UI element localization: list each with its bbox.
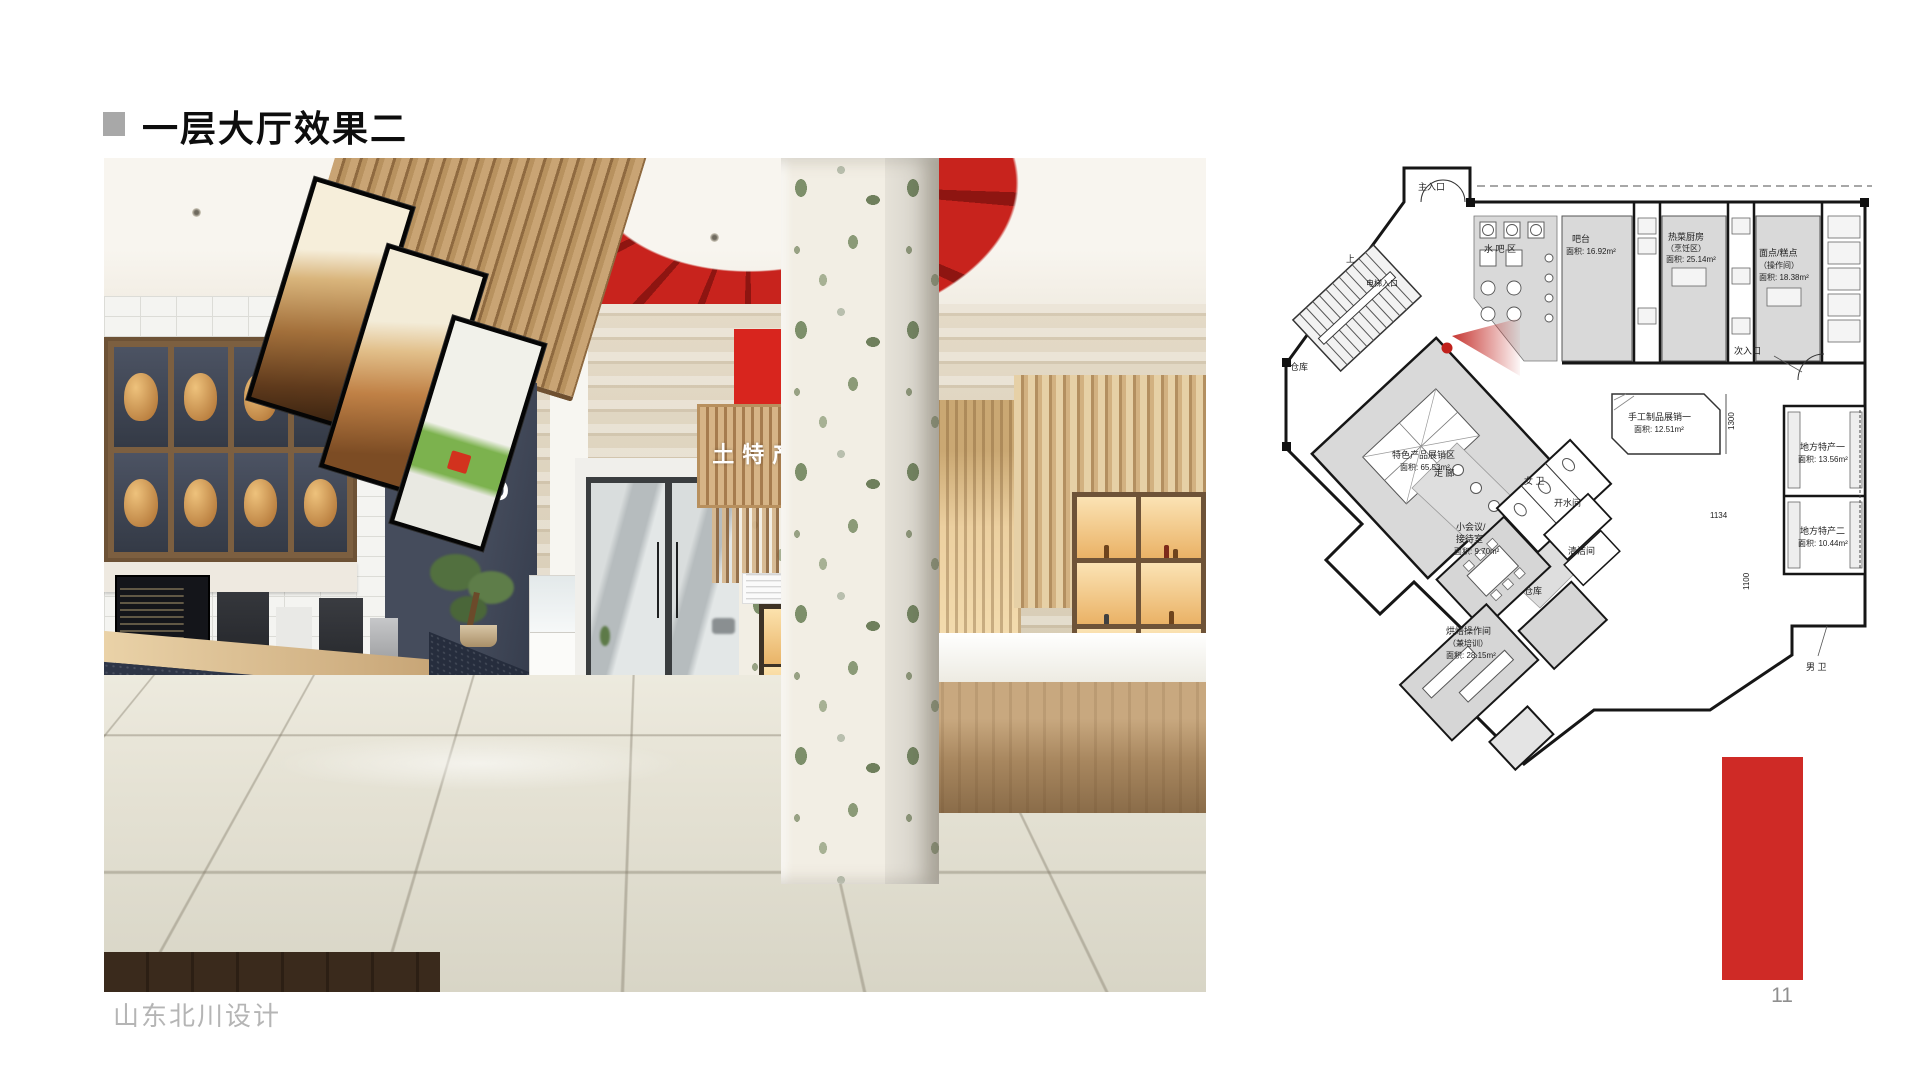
title-bullet <box>103 112 125 136</box>
plan-label: 开水间 <box>1554 497 1581 508</box>
plan-label: 次入口 <box>1734 345 1761 356</box>
plan-label: 特色产品展销区 <box>1392 449 1455 460</box>
plan-label: 面点/糕点 <box>1759 247 1798 258</box>
plan-label: 面积: 16.92m² <box>1566 246 1616 256</box>
plan-label: 仓库 <box>1290 361 1308 372</box>
plan-label: 面积: 25.14m² <box>1666 254 1716 264</box>
plan-label: 仓库 <box>1524 585 1542 596</box>
bread <box>184 373 217 421</box>
bread <box>124 479 157 527</box>
shelf-cubby <box>174 453 228 553</box>
leader-line <box>1818 626 1827 656</box>
door-leaf <box>591 483 665 681</box>
shelf-cubby <box>234 453 288 553</box>
shelf-cell <box>1077 563 1137 624</box>
plan-label: 男 卫 <box>1806 662 1827 672</box>
plan-label: 面积: 9.70m² <box>1454 546 1500 556</box>
page-title: 一层大厅效果二 <box>142 100 408 152</box>
plan-label: 电梯入口 <box>1366 278 1398 288</box>
door-handle <box>657 542 659 617</box>
plan-label: 接待室 <box>1456 533 1483 544</box>
bonsai-pot <box>460 625 497 647</box>
plan-label: 女 卫 <box>1524 475 1545 486</box>
plan-label: 面积: 13.56m² <box>1798 454 1848 464</box>
page-number: 11 <box>1752 984 1812 1008</box>
shelf-cubby <box>114 347 168 447</box>
plan-label: 地方特产二 <box>1800 525 1845 536</box>
red-accent-block <box>1722 757 1803 980</box>
plan-label: 清洁间 <box>1568 545 1595 556</box>
plan-label: 面积: 12.51m² <box>1634 424 1684 434</box>
plan-label: 吧台 <box>1572 233 1590 244</box>
bread <box>304 479 337 527</box>
handcraft-island <box>1612 394 1720 454</box>
shelf-cell <box>1077 497 1137 558</box>
bread <box>184 479 217 527</box>
plan-dimension: 1134 <box>1710 511 1728 520</box>
product <box>1104 545 1109 558</box>
plan-label: 地方特产一 <box>1800 441 1845 452</box>
column-shaded-face <box>885 158 939 884</box>
dark-wood-floor-strip <box>104 952 440 992</box>
door-handle <box>676 542 678 617</box>
product <box>1173 549 1178 558</box>
plan-label: 热菜厨房 <box>1668 231 1704 242</box>
shelf-cubby <box>174 347 228 447</box>
terrazzo-column-large <box>781 158 940 884</box>
plan-label: 手工制品展销一 <box>1628 411 1691 422</box>
plant-reflection <box>600 626 610 646</box>
bread <box>244 479 277 527</box>
plan-label: 烘焙操作间 <box>1446 625 1491 636</box>
shelf-cell <box>1141 497 1201 558</box>
lobby-rendering: LOGO LOGO LOGO <box>104 158 1206 992</box>
plan-label: 面积: 28.15m² <box>1446 650 1496 660</box>
product <box>1169 611 1174 624</box>
plan-label: （烹饪区） <box>1666 243 1706 253</box>
watermark: 山东北川设计 <box>113 996 281 1033</box>
local-specialty-block <box>1784 406 1865 574</box>
plan-label: （兼培训） <box>1448 638 1488 648</box>
logo-chip <box>447 450 471 474</box>
sofa-reflection <box>712 618 734 634</box>
camera-position-dot <box>1442 343 1453 354</box>
floor-plan: 主入口 水 吧 区 吧台 面积: 16.92m² 热菜厨房 （烹饪区） 面积: … <box>1262 158 1877 776</box>
plan-label: 水 吧 区 <box>1484 243 1516 254</box>
bread <box>124 373 157 421</box>
product <box>1104 614 1109 624</box>
plan-label: （操作间） <box>1759 260 1799 270</box>
plan-label: 小会议/ <box>1456 521 1486 532</box>
plan-label: 主入口 <box>1418 181 1445 192</box>
plan-label: 面积: 18.38m² <box>1759 272 1809 282</box>
product <box>1164 545 1169 558</box>
plan-label: 走 廊 <box>1434 467 1455 478</box>
plan-dimension: 1300 <box>1727 412 1736 430</box>
plan-dimension: 1100 <box>1742 572 1751 590</box>
plan-label: 上 <box>1346 254 1355 264</box>
floor-sheen <box>214 700 875 858</box>
plan-label: 面积: 10.44m² <box>1798 538 1848 548</box>
shelf-cubby <box>114 453 168 553</box>
shelf-cell <box>1141 563 1201 624</box>
